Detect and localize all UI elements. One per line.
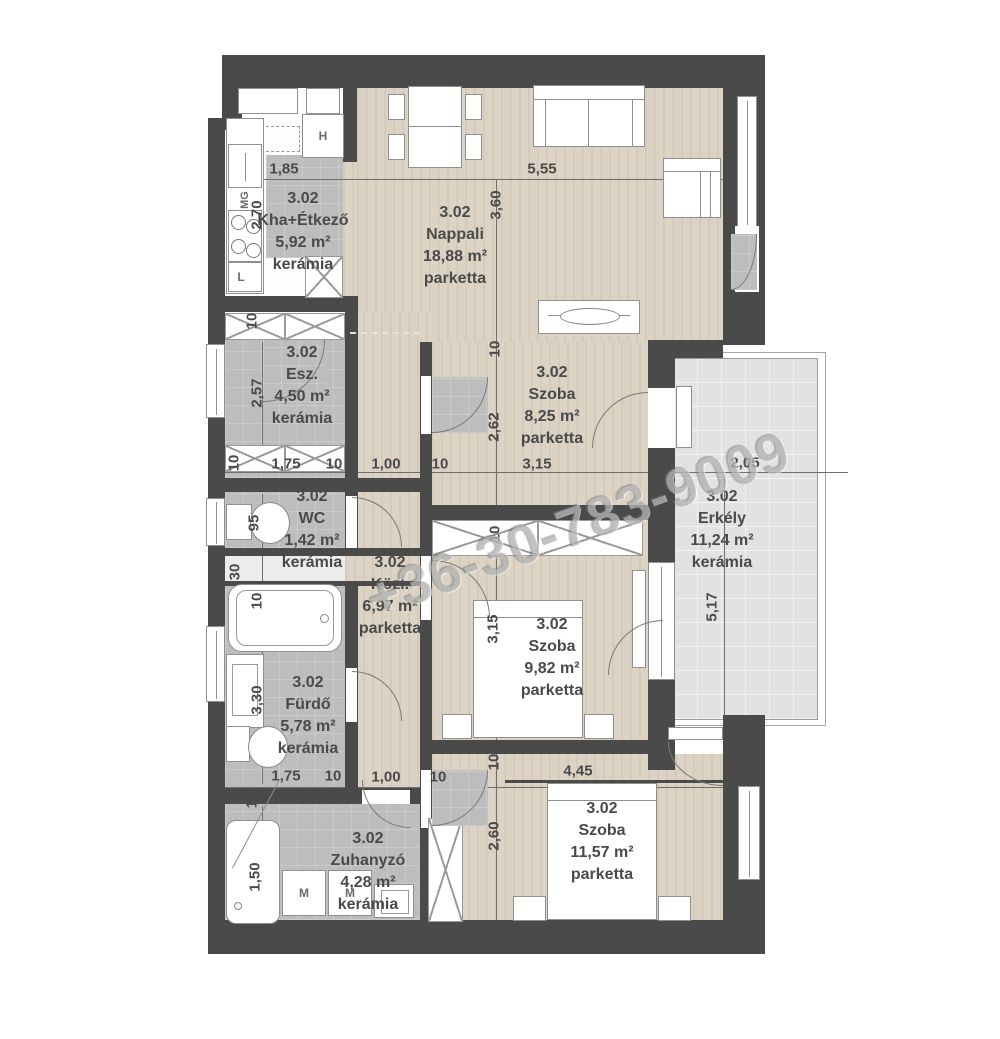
room-floor: kerámia bbox=[257, 254, 348, 276]
armchair bbox=[663, 158, 721, 218]
door-arc-nappali-balcony bbox=[731, 234, 757, 290]
room-floor: kerámia bbox=[272, 408, 333, 430]
dim-label: 3,15 bbox=[485, 614, 502, 643]
wall-bottom bbox=[208, 920, 765, 954]
room-name: WC bbox=[282, 508, 343, 530]
dim-label: 10 bbox=[430, 769, 447, 786]
room-code: 3.02 bbox=[359, 552, 421, 574]
room-label-kitchen: 3.02 Kha+Étkező 5,92 m² kerámia bbox=[257, 188, 348, 276]
window-glass-line bbox=[216, 349, 217, 415]
dim-label: 10 bbox=[244, 313, 261, 330]
dim-label: 1,00 bbox=[371, 769, 400, 786]
washer-label: M bbox=[299, 886, 309, 900]
radiator-szoba1 bbox=[676, 386, 692, 448]
room-area: 6,97 m² bbox=[359, 596, 421, 618]
dim-label: 10 bbox=[432, 456, 449, 473]
nightstand bbox=[442, 714, 472, 739]
room-code: 3.02 bbox=[690, 486, 753, 508]
dim-label: 10 bbox=[486, 754, 503, 771]
dim-label: 2,57 bbox=[249, 378, 266, 407]
room-area: 5,78 m² bbox=[278, 716, 339, 738]
dim-label: 10 bbox=[244, 792, 261, 809]
room-code: 3.02 bbox=[272, 342, 333, 364]
room-area: 5,92 m² bbox=[257, 232, 348, 254]
fridge-label: H bbox=[319, 129, 328, 143]
room-label-szoba2: 3.02 Szoba 9,82 m² parketta bbox=[521, 614, 583, 702]
door-gap-szoba2 bbox=[421, 556, 431, 620]
door-arc-szoba2-balcony bbox=[608, 620, 663, 675]
dim-label: 1,75 bbox=[271, 456, 300, 473]
dim-label: 10 bbox=[249, 593, 266, 610]
room-code: 3.02 bbox=[570, 798, 633, 820]
room-name: Esz. bbox=[272, 364, 333, 386]
room-name: Szoba bbox=[521, 384, 583, 406]
window-furdo-left bbox=[206, 626, 225, 702]
dim-label: 30 bbox=[227, 564, 244, 581]
window-glass-line bbox=[747, 101, 748, 225]
dim-label: 1,00 bbox=[371, 456, 400, 473]
kitchen-upper-cabinet-a bbox=[238, 88, 298, 114]
room-code: 3.02 bbox=[257, 188, 348, 210]
kitchen-upper-cabinet-b bbox=[306, 88, 340, 114]
room-code: 3.02 bbox=[521, 614, 583, 636]
chair bbox=[465, 94, 482, 120]
sofa-back-line bbox=[533, 99, 645, 100]
room-code: 3.02 bbox=[282, 486, 343, 508]
sofa bbox=[533, 85, 645, 147]
dim-label: 5,17 bbox=[704, 592, 721, 621]
room-name: Kha+Étkező bbox=[257, 210, 348, 232]
window-szoba3-right bbox=[738, 786, 760, 880]
dim-label: 3,60 bbox=[488, 190, 505, 219]
room-name: Szoba bbox=[570, 820, 633, 842]
nightstand bbox=[584, 714, 614, 739]
chair bbox=[388, 134, 405, 160]
dim-label: 5,55 bbox=[527, 161, 556, 178]
room-label-szoba1: 3.02 Szoba 8,25 m² parketta bbox=[521, 362, 583, 450]
door-arc-szoba1-left bbox=[432, 377, 488, 433]
door-gap-szoba1-balcony bbox=[648, 388, 675, 448]
door-arc-zuhanyzo bbox=[362, 780, 410, 828]
open-boundary-corridor bbox=[350, 332, 420, 334]
window-nappali-right bbox=[737, 96, 757, 228]
door-arc-szoba2-left bbox=[432, 560, 490, 618]
nightstand bbox=[513, 896, 546, 921]
dim-label: 2,70 bbox=[249, 200, 266, 229]
sofa-armrest-left bbox=[545, 99, 546, 147]
room-floor: kerámia bbox=[690, 552, 753, 574]
dishwasher-label: MG bbox=[239, 191, 251, 209]
shower-drain bbox=[234, 902, 242, 910]
room-name: Szoba bbox=[521, 636, 583, 658]
room-area: 11,24 m² bbox=[690, 530, 753, 552]
door-arc-wc bbox=[352, 497, 402, 547]
chair bbox=[465, 134, 482, 160]
room-label-kozl: 3.02 Közl. 6,97 m² parketta bbox=[359, 552, 421, 640]
dim-label: 10 bbox=[326, 456, 343, 473]
dim-label: 1,50 bbox=[247, 862, 264, 891]
room-floor: parketta bbox=[359, 618, 421, 640]
room-floor: parketta bbox=[570, 864, 633, 886]
wall-corridor-right-2 bbox=[420, 508, 432, 768]
dim-label: 2,60 bbox=[486, 821, 503, 850]
wall-top bbox=[222, 55, 765, 88]
wall-kitchen-bottom bbox=[208, 296, 358, 312]
floor-plan: 3.02 Kha+Étkező 5,92 m² kerámia 3.02 Nap… bbox=[0, 0, 1000, 1039]
room-label-nappali: 3.02 Nappali 18,88 m² parketta bbox=[423, 202, 487, 290]
tv-screen bbox=[560, 308, 620, 325]
dining-table bbox=[408, 86, 462, 168]
dim-label: 45 bbox=[651, 455, 668, 472]
dim-label: 1,85 bbox=[269, 161, 298, 178]
room-area: 4,28 m² bbox=[331, 872, 406, 894]
wall-esz-right bbox=[345, 312, 358, 478]
sofa-armrest-right bbox=[632, 99, 633, 147]
room-area: 9,82 m² bbox=[521, 658, 583, 680]
door-arc-szoba3-balcony bbox=[668, 742, 723, 786]
room-area: 11,57 m² bbox=[570, 842, 633, 864]
room-code: 3.02 bbox=[278, 672, 339, 694]
room-floor: parketta bbox=[423, 268, 487, 290]
room-floor: parketta bbox=[521, 428, 583, 450]
room-label-furdo: 3.02 Fürdő 5,78 m² kerámia bbox=[278, 672, 339, 760]
washer-label: M bbox=[345, 886, 355, 900]
door-arc-szoba1-balcony bbox=[592, 392, 648, 448]
dim-label: 1,75 bbox=[271, 768, 300, 785]
room-label-zuhanyzo: 3.02 Zuhanyzó 4,28 m² kerámia bbox=[331, 828, 406, 916]
cabinet-label: L bbox=[237, 270, 244, 284]
nightstand bbox=[658, 896, 691, 921]
toilet-tank-furdo bbox=[226, 726, 250, 762]
kitchen-sink-unit bbox=[228, 144, 262, 188]
dim-label: 10 bbox=[487, 341, 504, 358]
chair bbox=[388, 94, 405, 120]
wall-kitchen-pillar bbox=[343, 88, 357, 162]
room-code: 3.02 bbox=[521, 362, 583, 384]
room-name: Erkély bbox=[690, 508, 753, 530]
dim-label: 4,45 bbox=[563, 763, 592, 780]
closet-szoba2-a bbox=[432, 520, 538, 556]
burner bbox=[231, 215, 246, 230]
window-wc-left bbox=[206, 498, 225, 546]
room-name: Nappali bbox=[423, 224, 487, 246]
dim-label: 95 bbox=[246, 515, 263, 532]
room-area: 4,50 m² bbox=[272, 386, 333, 408]
armchair-line bbox=[663, 171, 721, 172]
closet-esz-top-b bbox=[285, 313, 345, 340]
wall-balcony-stub bbox=[675, 340, 723, 358]
dim-label: 2,62 bbox=[486, 412, 503, 441]
room-name: Fürdő bbox=[278, 694, 339, 716]
door-arc-furdo bbox=[352, 671, 402, 721]
room-label-szoba3: 3.02 Szoba 11,57 m² parketta bbox=[570, 798, 633, 886]
window-glass-line bbox=[216, 631, 217, 699]
room-floor: kerámia bbox=[282, 552, 343, 574]
room-area: 1,42 m² bbox=[282, 530, 343, 552]
balcony-door-leaf-szoba3 bbox=[668, 727, 723, 740]
dim-label: 3,30 bbox=[249, 685, 266, 714]
wall-szoba2-szoba3 bbox=[432, 740, 675, 754]
window-esz-left bbox=[206, 344, 225, 418]
closet-szoba2-b bbox=[538, 520, 643, 556]
room-floor: kerámia bbox=[278, 738, 339, 760]
dim-label: 10 bbox=[226, 455, 243, 472]
dining-table-line bbox=[408, 126, 462, 127]
room-floor: parketta bbox=[521, 680, 583, 702]
dim-label: 3,15 bbox=[522, 456, 551, 473]
room-area: 8,25 m² bbox=[521, 406, 583, 428]
room-code: 3.02 bbox=[331, 828, 406, 850]
room-area: 18,88 m² bbox=[423, 246, 487, 268]
room-label-wc: 3.02 WC 1,42 m² kerámia bbox=[282, 486, 343, 574]
room-floor: kerámia bbox=[331, 894, 406, 916]
dim-label: 10 bbox=[487, 526, 504, 543]
armchair-cushion-a bbox=[700, 172, 701, 218]
bathtub-drain bbox=[320, 614, 329, 623]
room-name: Közl. bbox=[359, 574, 421, 596]
closet-szoba3 bbox=[428, 818, 463, 922]
wall-szoba1-szoba2 bbox=[432, 505, 675, 520]
room-label-erkely: 3.02 Erkély 11,24 m² kerámia bbox=[690, 486, 753, 574]
room-name: Zuhanyzó bbox=[331, 850, 406, 872]
sink-line bbox=[245, 153, 246, 181]
dim-label: 2,05 bbox=[730, 455, 759, 472]
room-label-esz: 3.02 Esz. 4,50 m² kerámia bbox=[272, 342, 333, 430]
sofa-cushion-divider bbox=[588, 99, 589, 147]
armchair-cushion-b bbox=[710, 172, 711, 218]
window-glass-line bbox=[216, 502, 217, 544]
room-code: 3.02 bbox=[423, 202, 487, 224]
dim-label: 10 bbox=[325, 768, 342, 785]
burner bbox=[231, 239, 246, 254]
window-glass-line bbox=[749, 791, 750, 877]
door-gap-szoba1 bbox=[421, 376, 431, 434]
